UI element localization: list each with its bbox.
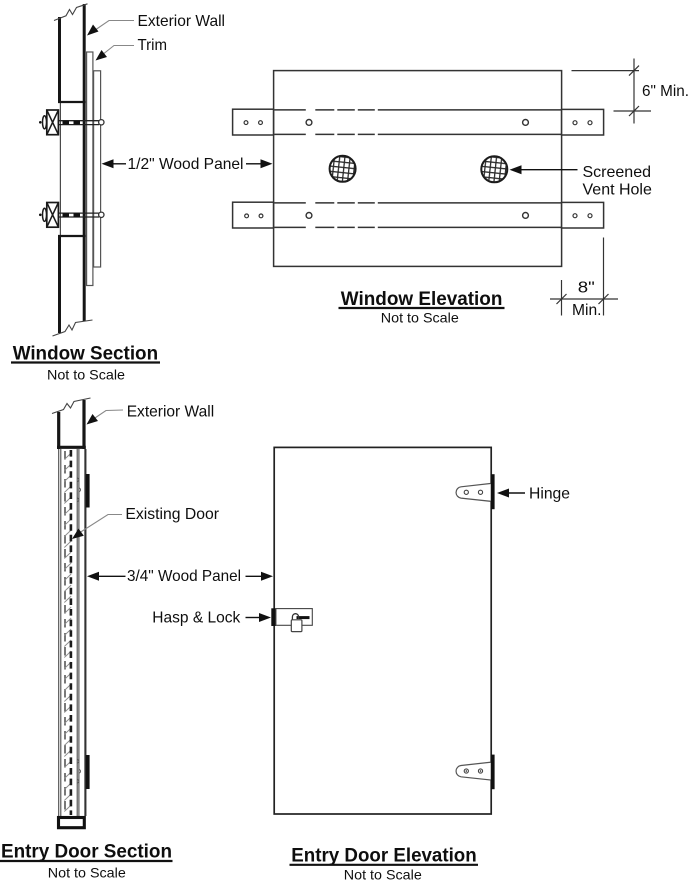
svg-text:Vent Hole: Vent Hole — [583, 182, 652, 199]
svg-text:Not to Scale: Not to Scale — [381, 310, 459, 326]
svg-text:Entry Door Elevation: Entry Door Elevation — [291, 846, 476, 867]
svg-text:1/2" Wood Panel: 1/2" Wood Panel — [128, 156, 244, 173]
svg-text:6" Min.: 6" Min. — [642, 83, 689, 100]
svg-text:Hasp & Lock: Hasp & Lock — [152, 610, 241, 627]
svg-text:Not to Scale: Not to Scale — [47, 367, 125, 383]
svg-text:Not to Scale: Not to Scale — [48, 865, 126, 881]
svg-text:8": 8" — [578, 280, 595, 297]
svg-text:Exterior Wall: Exterior Wall — [127, 404, 215, 421]
svg-text:Window Elevation: Window Elevation — [341, 289, 503, 310]
svg-text:Hinge: Hinge — [529, 486, 570, 503]
svg-text:3/4" Wood Panel: 3/4" Wood Panel — [127, 568, 241, 585]
svg-text:Window Section: Window Section — [13, 344, 158, 365]
svg-text:Exterior Wall: Exterior Wall — [138, 13, 226, 30]
svg-text:Trim: Trim — [138, 37, 168, 54]
svg-text:Entry Door Section: Entry Door Section — [1, 842, 172, 863]
svg-text:Existing Door: Existing Door — [125, 506, 219, 523]
svg-text:Screened: Screened — [583, 164, 652, 181]
svg-text:Min.: Min. — [572, 302, 602, 319]
svg-text:Not to Scale: Not to Scale — [344, 867, 422, 883]
